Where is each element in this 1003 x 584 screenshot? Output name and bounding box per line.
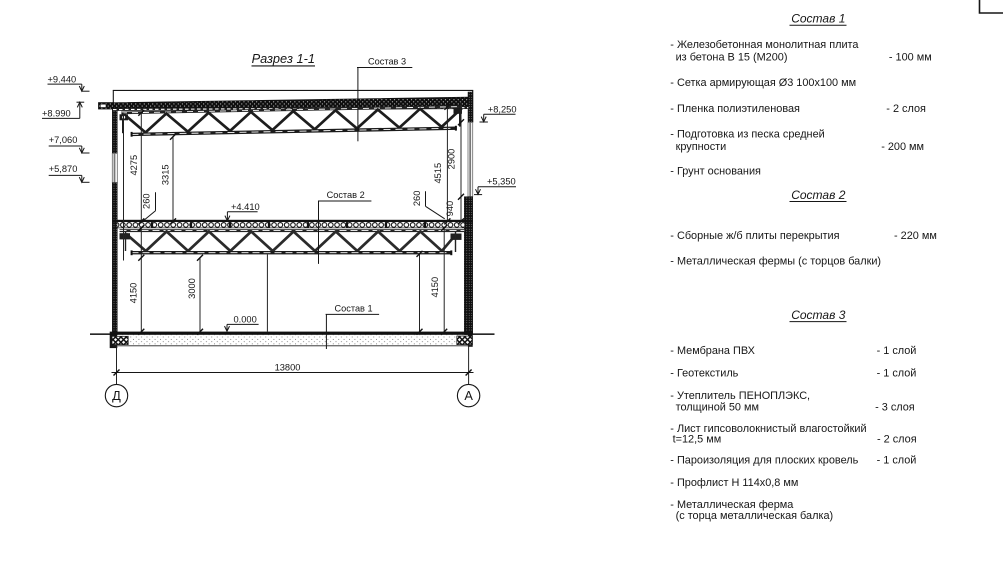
svg-text:толщиной 50 мм: толщиной 50 мм — [676, 402, 759, 414]
svg-text:Состав 1: Состав 1 — [335, 304, 373, 314]
svg-text:- Металлическая фермы (с торцо: - Металлическая фермы (с торцов балки) — [670, 256, 881, 268]
svg-text:крупности: крупности — [676, 141, 727, 153]
svg-text:t=12,5 мм: t=12,5 мм — [673, 433, 722, 445]
svg-text:+5,870: +5,870 — [49, 164, 78, 174]
svg-text:260: 260 — [142, 193, 152, 209]
svg-text:+8,250: +8,250 — [488, 104, 517, 114]
svg-text:+7,060: +7,060 — [49, 135, 78, 145]
svg-text:- Сборные ж/б плиты перекрытия: - Сборные ж/б плиты перекрытия — [670, 230, 839, 242]
svg-text:2900: 2900 — [447, 149, 457, 170]
svg-text:(с торца металлическая балка): (с торца металлическая балка) — [676, 510, 834, 522]
svg-text:- Пароизоляция для плоских кро: - Пароизоляция для плоских кровель — [670, 455, 858, 467]
svg-text:940: 940 — [445, 201, 455, 217]
svg-text:Состав 3: Состав 3 — [791, 308, 845, 322]
svg-text:- 200 мм: - 200 мм — [881, 141, 924, 153]
svg-text:- 2 слоя: - 2 слоя — [886, 103, 926, 115]
svg-text:- 3 слоя: - 3 слоя — [875, 402, 915, 414]
svg-text:- Мембрана ПВХ: - Мембрана ПВХ — [670, 345, 755, 357]
svg-text:Состав 2: Состав 2 — [791, 188, 845, 202]
svg-text:- 1 слой: - 1 слой — [877, 345, 917, 357]
svg-text:3000: 3000 — [187, 278, 197, 299]
svg-text:из бетона В 15 (М200): из бетона В 15 (М200) — [676, 51, 788, 63]
svg-text:4150: 4150 — [128, 283, 138, 304]
svg-text:13800: 13800 — [275, 362, 301, 372]
svg-text:Состав 2: Состав 2 — [327, 190, 365, 200]
svg-text:Д: Д — [112, 388, 121, 403]
svg-text:+8.990: +8.990 — [42, 109, 71, 119]
svg-text:3315: 3315 — [160, 164, 170, 185]
svg-text:4275: 4275 — [129, 155, 139, 176]
svg-text:- 1 слой: - 1 слой — [877, 455, 917, 467]
svg-text:- Грунт основания: - Грунт основания — [670, 166, 761, 178]
svg-text:+4.410: +4.410 — [231, 202, 260, 212]
svg-text:260: 260 — [412, 191, 422, 207]
svg-text:- 1 слой: - 1 слой — [877, 367, 917, 379]
svg-text:А: А — [464, 388, 473, 403]
svg-text:- Подготовка из песка средней: - Подготовка из песка средней — [670, 129, 824, 141]
svg-text:- 220 мм: - 220 мм — [894, 230, 937, 242]
svg-text:- Железобетонная монолитная п: - Железобетонная монолитная плита — [670, 39, 859, 51]
svg-text:- Геотекстиль: - Геотекстиль — [670, 367, 738, 379]
svg-text:0.000: 0.000 — [234, 315, 257, 325]
svg-text:Состав 1: Состав 1 — [791, 12, 845, 26]
svg-text:- Сетка армирующая Ø3 100х100: - Сетка армирующая Ø3 100х100 мм — [670, 77, 856, 89]
svg-text:+9.440: +9.440 — [48, 74, 77, 84]
svg-text:+5,350: +5,350 — [487, 177, 516, 187]
svg-text:4150: 4150 — [430, 277, 440, 298]
svg-text:Разрез 1-1: Разрез 1-1 — [252, 51, 315, 66]
svg-text:- 2 слоя: - 2 слоя — [877, 433, 917, 445]
svg-text:- Пленка полиэтиленовая: - Пленка полиэтиленовая — [670, 103, 800, 115]
svg-text:Состав 3: Состав 3 — [368, 57, 406, 67]
svg-text:- Профлист Н 114х0,8 мм: - Профлист Н 114х0,8 мм — [670, 477, 798, 489]
svg-text:- 100 мм: - 100 мм — [889, 51, 932, 63]
svg-text:4515: 4515 — [433, 163, 443, 184]
svg-text:- Утеплитель ПЕНОПЛЭКС,: - Утеплитель ПЕНОПЛЭКС, — [670, 390, 810, 402]
